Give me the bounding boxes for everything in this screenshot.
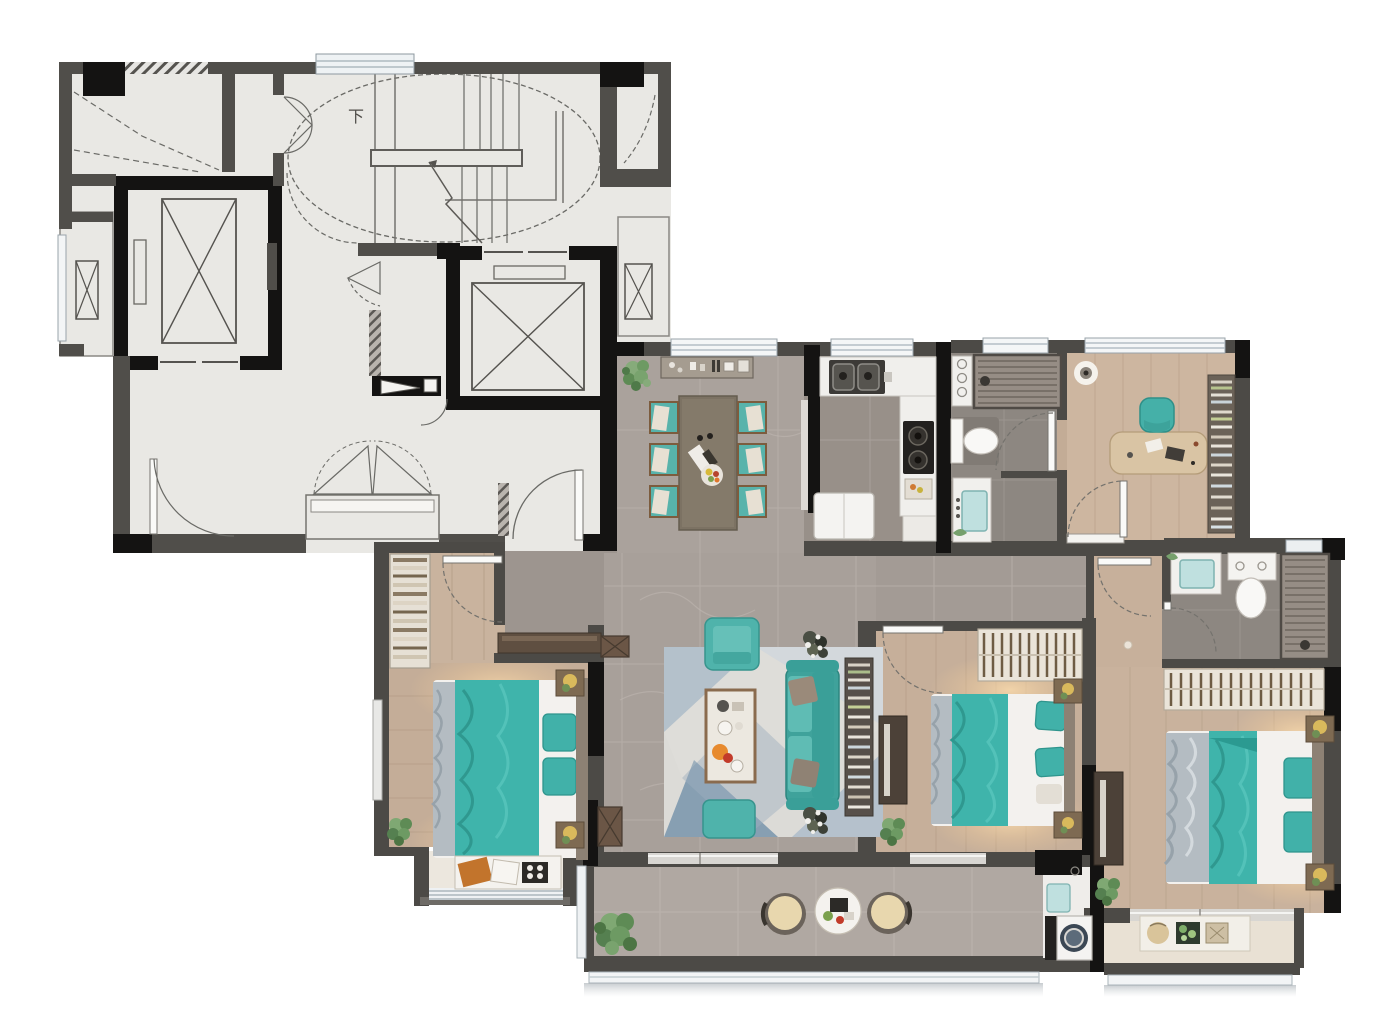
svg-text:下: 下 <box>348 109 364 126</box>
